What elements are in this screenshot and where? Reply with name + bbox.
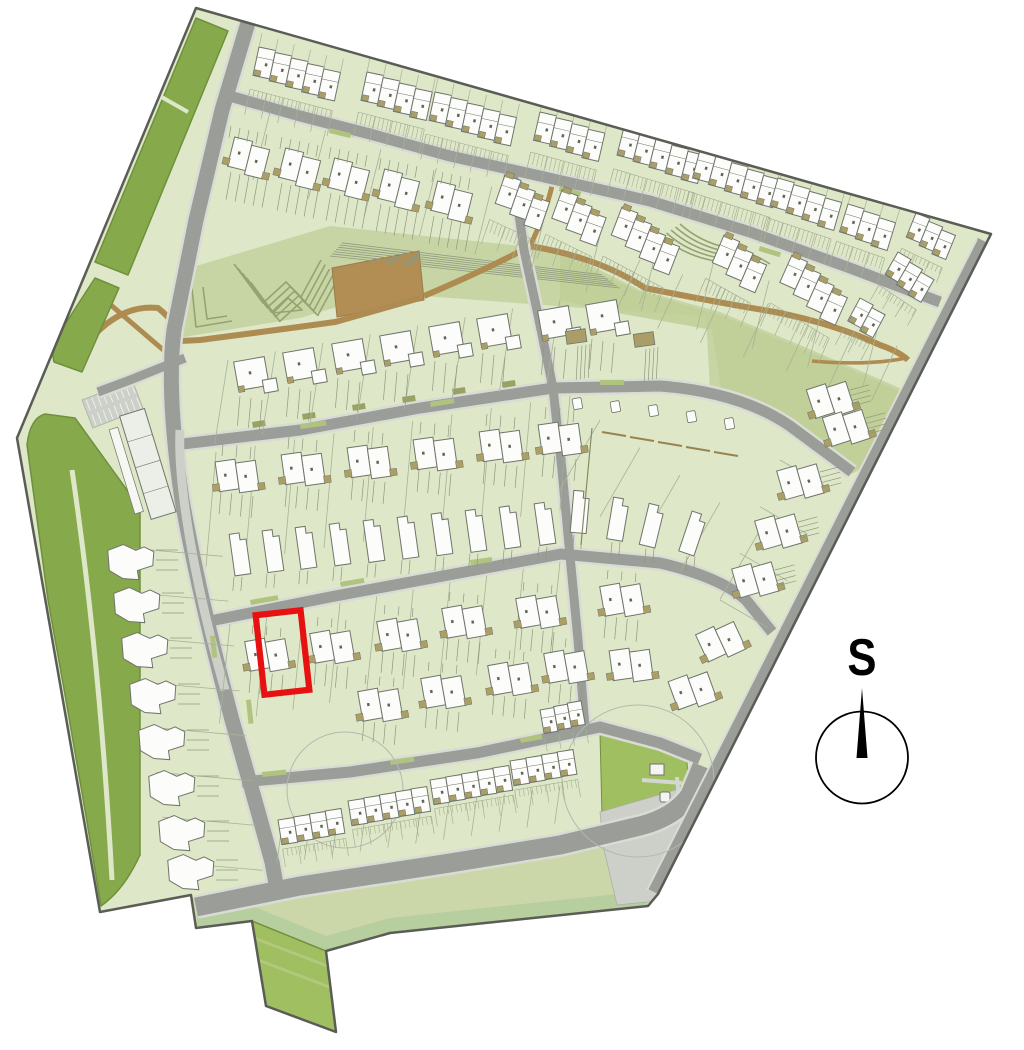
- svg-text:S: S: [847, 630, 876, 687]
